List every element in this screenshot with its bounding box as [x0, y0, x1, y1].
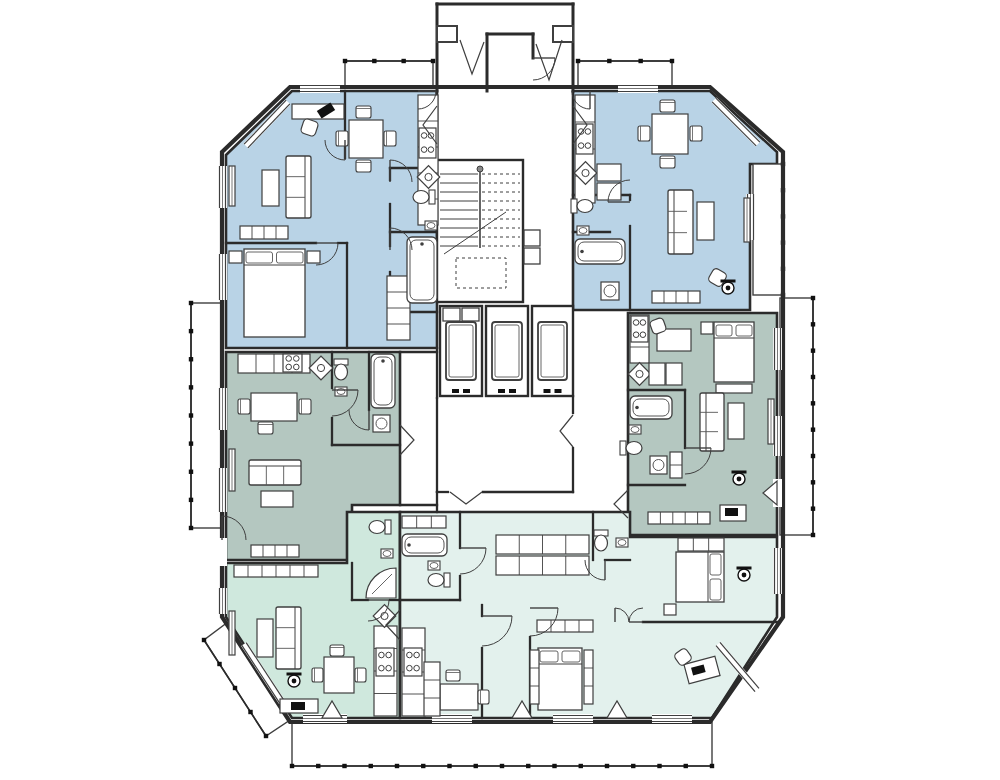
entrance-vestibule	[437, 4, 573, 91]
balcony	[343, 59, 435, 88]
wm	[601, 282, 619, 300]
window	[652, 714, 692, 723]
coffee	[257, 619, 273, 657]
bed	[676, 552, 724, 602]
balcony	[753, 162, 785, 297]
doorway-break	[450, 492, 482, 504]
nstand	[701, 322, 713, 334]
table	[440, 684, 478, 710]
balcony-rail-tick	[657, 764, 661, 768]
balcony-rail-tick	[316, 764, 320, 768]
elevator-car	[538, 322, 567, 380]
basin	[425, 221, 437, 230]
balcony-rail-tick	[233, 686, 237, 690]
balcony-rail-tick	[811, 401, 815, 405]
basin	[335, 387, 347, 396]
plant	[287, 673, 302, 688]
wardrobe	[678, 538, 724, 551]
balcony	[189, 301, 222, 530]
plant	[732, 471, 747, 486]
chair	[660, 156, 675, 168]
balcony-rail-tick	[811, 375, 815, 379]
balcony-rail-tick	[811, 322, 815, 326]
toilet	[413, 190, 435, 204]
toilet	[334, 359, 348, 380]
sideboard	[648, 512, 710, 524]
window	[218, 166, 227, 208]
sofa	[276, 607, 301, 669]
balcony-rail-tick	[474, 764, 478, 768]
doorway-break	[400, 425, 414, 455]
balcony-rail-tick	[638, 59, 642, 63]
box	[597, 164, 621, 181]
toilet	[571, 199, 593, 213]
plant	[721, 280, 736, 295]
floor-plan-page	[0, 0, 1000, 780]
nstand	[229, 251, 242, 263]
wardrobe	[496, 535, 589, 554]
balcony-rail-tick	[421, 764, 425, 768]
toilet	[620, 441, 642, 455]
chairv	[384, 131, 396, 146]
balcony-rail-tick	[710, 764, 714, 768]
balcony-rail-tick	[342, 764, 346, 768]
sideboard	[652, 291, 700, 303]
window	[218, 468, 227, 512]
doorway-break	[560, 415, 573, 447]
chairv	[336, 131, 348, 146]
balcony	[290, 722, 714, 768]
tv	[229, 449, 235, 491]
elevator-car	[492, 322, 522, 380]
window	[218, 588, 227, 614]
basin	[616, 538, 628, 547]
elevator	[532, 306, 573, 396]
doorway-break	[536, 40, 562, 80]
balcony-rail-tick	[189, 385, 193, 389]
balcony-rail-tick	[189, 470, 193, 474]
stove	[283, 354, 302, 372]
chair	[356, 160, 371, 172]
balcony-rail-tick	[264, 734, 268, 738]
balcony-rail-tick	[811, 348, 815, 352]
box	[649, 363, 665, 385]
tv	[229, 166, 235, 206]
wardrobe	[402, 516, 446, 528]
basin	[428, 561, 440, 570]
balcony-rail-tick	[248, 710, 252, 714]
balcony	[576, 59, 674, 88]
balcony-rail-tick	[431, 59, 435, 63]
balcony-rail-tick	[189, 498, 193, 502]
laptop	[291, 702, 305, 710]
window	[218, 254, 227, 300]
tub	[402, 534, 447, 556]
chair	[330, 645, 344, 656]
window	[773, 548, 782, 594]
counter	[418, 95, 438, 225]
balcony	[780, 296, 815, 537]
window	[553, 714, 593, 723]
table	[652, 114, 688, 154]
balcony-rail-tick	[811, 480, 815, 484]
balcony-rail-tick	[189, 526, 193, 530]
balcony-rail-tick	[811, 454, 815, 458]
coffee	[262, 170, 279, 206]
table	[251, 393, 297, 421]
balcony-rail-tick	[372, 59, 376, 63]
table	[324, 657, 354, 693]
floor-plan-svg	[0, 0, 1000, 780]
sofa	[286, 156, 311, 218]
door-gap	[218, 538, 227, 566]
balcony-rail-tick	[447, 764, 451, 768]
balcony-rail-tick	[811, 427, 815, 431]
toilet	[428, 573, 450, 587]
wm	[373, 415, 390, 432]
toilet	[369, 520, 391, 534]
doorway-break	[460, 40, 484, 74]
chair	[258, 422, 273, 434]
balcony-rail-tick	[670, 59, 674, 63]
sideboard	[251, 545, 299, 557]
window	[300, 84, 340, 93]
balcony-rail-tick	[189, 301, 193, 305]
bench	[716, 384, 752, 393]
balcony-rail-tick	[217, 662, 221, 666]
chairv	[638, 126, 650, 141]
box	[597, 183, 621, 200]
balcony-rail-tick	[631, 764, 635, 768]
chair	[356, 106, 371, 118]
bed	[244, 249, 305, 337]
sofa	[668, 190, 693, 254]
tub	[371, 354, 395, 408]
wardrobe	[584, 650, 593, 704]
tv	[744, 198, 750, 242]
elevator-car	[446, 322, 476, 380]
chairv	[690, 126, 702, 141]
laptop	[725, 508, 738, 516]
basin	[577, 226, 589, 235]
wm	[650, 456, 667, 474]
chair	[660, 100, 675, 112]
bed	[714, 322, 754, 382]
chairv	[478, 690, 489, 704]
stove	[631, 316, 648, 342]
wardrobe	[424, 662, 440, 716]
coffee	[261, 491, 293, 507]
chairv	[355, 668, 366, 682]
bench	[664, 604, 676, 615]
elevator	[486, 306, 528, 396]
toilet	[594, 530, 608, 551]
coffee	[697, 202, 714, 240]
box	[666, 363, 682, 385]
window	[618, 84, 658, 93]
balcony-rail-tick	[552, 764, 556, 768]
coffee	[728, 403, 744, 439]
window	[218, 388, 227, 430]
balcony-rail-tick	[579, 764, 583, 768]
sideboard	[240, 226, 288, 239]
bed	[538, 648, 582, 710]
balcony-rail-tick	[526, 764, 530, 768]
chair	[446, 670, 460, 681]
stove	[419, 128, 436, 158]
tv	[229, 611, 235, 655]
plant	[737, 567, 752, 582]
balcony-rail-tick	[290, 764, 294, 768]
sideboard	[234, 565, 318, 577]
balcony-rail-tick	[189, 413, 193, 417]
wardrobe	[670, 452, 682, 478]
balcony-rail-tick	[189, 357, 193, 361]
balcony-rail-tick	[189, 441, 193, 445]
elevator-bank	[440, 306, 573, 396]
chairv	[312, 668, 323, 682]
tv	[768, 399, 774, 444]
basin	[629, 425, 641, 434]
balcony-rail-tick	[576, 59, 580, 63]
stove	[376, 648, 394, 676]
balcony-rail-tick	[343, 59, 347, 63]
wardrobe	[496, 556, 589, 575]
balcony-rail-tick	[811, 296, 815, 300]
balcony-rail-tick	[605, 764, 609, 768]
basin	[381, 549, 393, 558]
table	[349, 120, 383, 158]
window	[773, 328, 782, 370]
tub	[575, 239, 625, 264]
sofa	[249, 460, 301, 485]
balcony-rail-tick	[684, 764, 688, 768]
sideboard	[537, 620, 593, 632]
balcony-rail-tick	[607, 59, 611, 63]
balcony-rail-tick	[395, 764, 399, 768]
balcony-rail-tick	[202, 638, 206, 642]
balcony-rail-tick	[369, 764, 373, 768]
door-arc	[533, 58, 555, 80]
chairv	[299, 399, 311, 414]
sofa	[700, 393, 724, 451]
balcony-rail-tick	[811, 533, 815, 537]
balcony-rail-tick	[500, 764, 504, 768]
balcony-rail-tick	[811, 506, 815, 510]
chairv	[238, 399, 250, 414]
stove	[404, 648, 422, 676]
balcony-rail-tick	[401, 59, 405, 63]
balcony-rail-tick	[189, 329, 193, 333]
staircase	[437, 160, 540, 302]
tub	[630, 396, 672, 419]
nstand	[307, 251, 320, 263]
wardrobe	[530, 650, 539, 704]
